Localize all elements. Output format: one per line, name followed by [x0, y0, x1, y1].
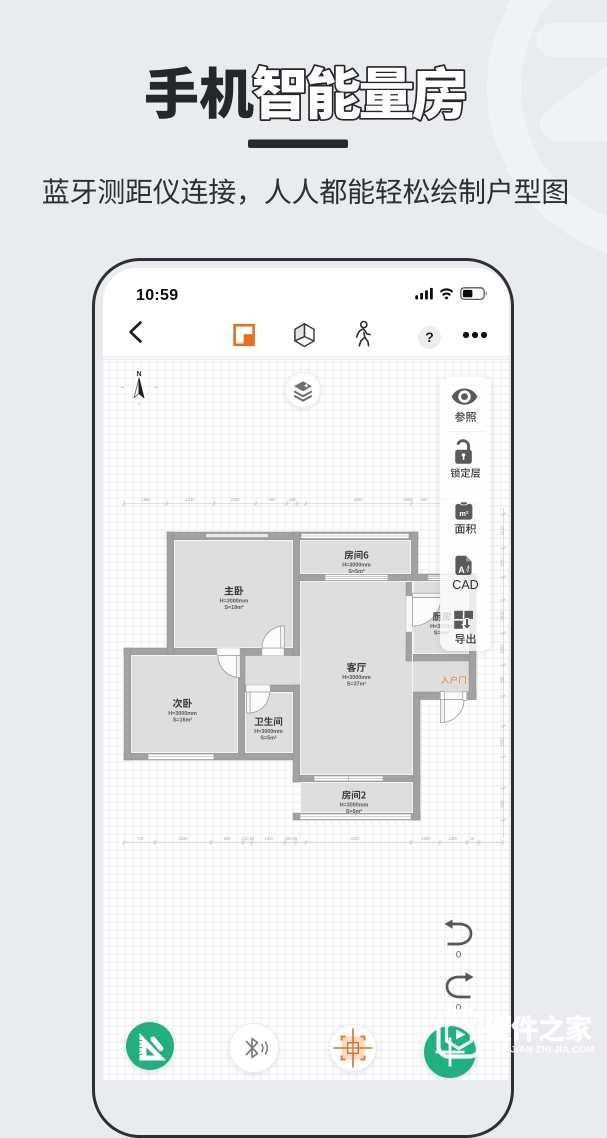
svg-text:H=3000mm: H=3000mm — [254, 729, 283, 735]
svg-text:1660: 1660 — [141, 497, 151, 502]
svg-text:S=5m²: S=5m² — [348, 569, 365, 575]
svg-text:S=19m²: S=19m² — [224, 605, 244, 611]
svg-text:900: 900 — [269, 497, 277, 502]
svg-text:S=16m²: S=16m² — [173, 718, 193, 724]
svg-text:255: 255 — [500, 559, 505, 567]
svg-text:240: 240 — [289, 497, 297, 502]
svg-text:0: 0 — [456, 950, 461, 961]
svg-text:1500: 1500 — [264, 836, 274, 841]
svg-text:N: N — [136, 371, 141, 378]
svg-text:S=5m²: S=5m² — [346, 809, 363, 815]
svg-text:4100: 4100 — [350, 836, 360, 841]
svg-text:1330: 1330 — [185, 497, 195, 502]
svg-text:450: 450 — [500, 800, 505, 808]
svg-text:YING JIAN ZHI JIA.COM: YING JIAN ZHI JIA.COM — [484, 1044, 594, 1055]
svg-text:CAD: CAD — [452, 578, 478, 592]
svg-text:S=5m²: S=5m² — [260, 736, 277, 742]
svg-text:10: 10 — [470, 836, 475, 841]
svg-text:2300: 2300 — [230, 497, 240, 502]
svg-text:1200: 1200 — [448, 836, 458, 841]
svg-text:4250: 4250 — [353, 497, 363, 502]
svg-text:840: 840 — [224, 836, 232, 841]
svg-text:H=3000mm: H=3000mm — [342, 675, 371, 681]
svg-text:400: 400 — [421, 497, 429, 502]
svg-text:2565: 2565 — [403, 497, 413, 502]
svg-text:1415: 1415 — [500, 526, 505, 536]
svg-text:1000: 1000 — [421, 836, 431, 841]
svg-text:H=3000mm: H=3000mm — [340, 803, 369, 809]
svg-text:3410: 3410 — [500, 611, 505, 621]
svg-text:255: 255 — [500, 676, 505, 684]
svg-text:2160: 2160 — [178, 836, 188, 841]
svg-text:m²: m² — [459, 509, 469, 518]
svg-text:H=3000mm: H=3000mm — [342, 563, 371, 569]
svg-text:1600: 1600 — [500, 644, 505, 654]
svg-text:S=37m²: S=37m² — [347, 682, 367, 688]
svg-text:2900: 2900 — [500, 737, 505, 747]
svg-text:A: A — [458, 565, 465, 575]
svg-text:H=3000mm: H=3000mm — [168, 711, 197, 717]
svg-text:200,45: 200,45 — [285, 836, 298, 841]
svg-text:H=3000mm: H=3000mm — [220, 599, 249, 605]
svg-text:710: 710 — [137, 836, 145, 841]
svg-text:240,50: 240,50 — [242, 836, 255, 841]
